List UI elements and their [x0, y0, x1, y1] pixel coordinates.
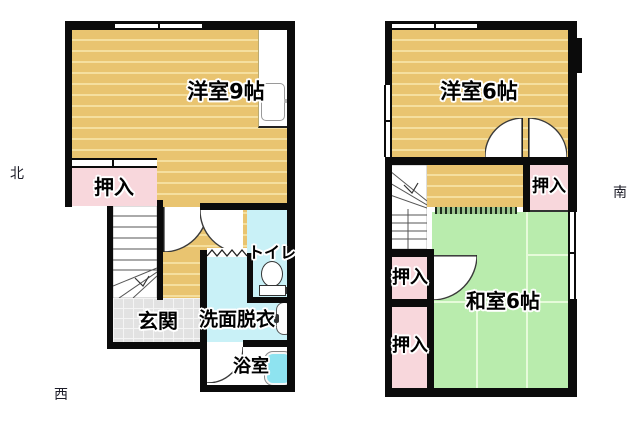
room-label-japanese6: 和室6帖	[466, 291, 540, 311]
room-label-closet-w2: 押入	[392, 337, 428, 355]
door-arc-icon	[528, 118, 567, 157]
wall	[200, 385, 295, 392]
wall	[385, 157, 392, 397]
wall	[243, 340, 295, 347]
wall	[568, 299, 577, 397]
window	[568, 212, 576, 299]
wall	[107, 342, 207, 349]
wall	[65, 21, 72, 207]
window-tick	[568, 252, 576, 254]
room-label-bathroom: 浴室	[233, 358, 269, 376]
wall	[523, 157, 530, 212]
room-label-western9: 洋室9帖	[187, 82, 265, 103]
hallway-2f	[427, 165, 523, 207]
wall	[568, 21, 577, 212]
sliding-door	[72, 158, 157, 168]
hallway-1f-lower	[163, 253, 200, 300]
window-tick	[384, 120, 392, 122]
wall	[385, 388, 577, 397]
stairs-icon	[390, 165, 427, 249]
wall	[385, 21, 392, 85]
wall	[157, 200, 163, 300]
stairs-icon	[113, 206, 157, 298]
compass-south: 南	[613, 186, 627, 200]
floor-plan-canvas: 洋室9帖 押入 玄関 洗面脱衣 トイレ 浴室	[0, 0, 640, 423]
tatami-line	[476, 302, 478, 388]
room-label-western6: 洋室6帖	[440, 82, 518, 103]
wall	[427, 249, 434, 388]
room-label-closet-w1: 押入	[392, 269, 428, 287]
window-tick	[434, 22, 436, 30]
tatami-line	[526, 302, 528, 388]
compass-north: 北	[10, 167, 24, 181]
room-label-closet1f: 押入	[94, 177, 134, 197]
window-tick	[158, 22, 160, 30]
room-label-closet-ne: 押入	[532, 179, 566, 196]
room-label-toilet: トイレ	[248, 245, 296, 261]
sill-hatch	[435, 207, 517, 214]
compass-west: 西	[54, 388, 68, 402]
wall-pillar	[577, 38, 582, 73]
wall	[107, 200, 113, 349]
accordion-door-icon	[207, 248, 247, 258]
room-label-washroom: 洗面脱衣	[199, 311, 275, 330]
toilet-icon	[259, 259, 289, 299]
wall	[385, 157, 568, 165]
room-label-entrance: 玄関	[138, 311, 178, 331]
wall	[247, 297, 295, 303]
door-arc-icon	[485, 118, 523, 157]
wall	[200, 203, 295, 210]
sliding-door-tick	[112, 158, 114, 168]
tatami-line	[527, 254, 568, 256]
door-arc-icon	[200, 209, 243, 253]
